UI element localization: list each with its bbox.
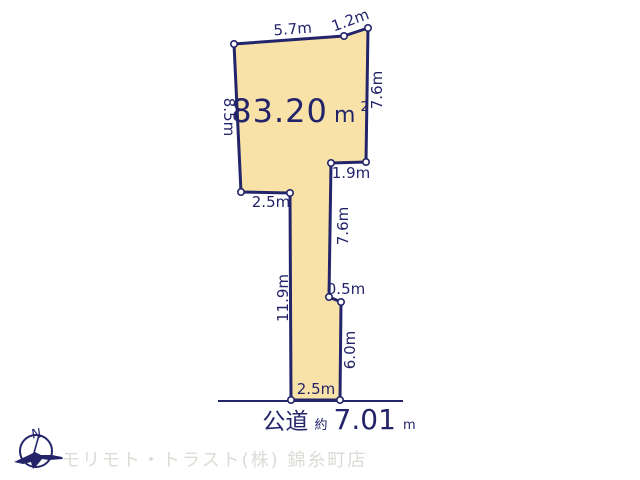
parcel-area-value: 83.20 xyxy=(231,92,328,130)
road-name: 公道 xyxy=(262,409,308,435)
road-width-unit: m xyxy=(403,418,416,433)
vertex-dot xyxy=(341,33,347,39)
vertex-dot xyxy=(288,397,294,403)
dim-right-middle: 7.6m xyxy=(334,207,352,245)
parcel-area-unit: m xyxy=(334,103,355,128)
dim-right-upper: 7.6m xyxy=(368,71,386,109)
dim-notch-right: 1.9m xyxy=(332,164,370,182)
dim-right-lower: 6.0m xyxy=(341,331,359,369)
road-approx-label: 約 xyxy=(314,418,327,433)
compass-north-label: N xyxy=(31,426,43,442)
vertex-dot xyxy=(231,41,237,47)
dim-step-right: 0.5m xyxy=(327,280,365,298)
dim-left-lower: 11.9m xyxy=(274,274,292,322)
vertex-dot xyxy=(338,299,344,305)
dim-bottom: 2.5m xyxy=(297,380,335,398)
site-plan-page: 5.7m 1.2m 7.6m 1.9m 7.6m 2.5m 8.5m 11.9m… xyxy=(0,0,640,480)
dim-notch-left: 2.5m xyxy=(252,193,290,211)
vertex-dot xyxy=(365,25,371,31)
road-width-value: 7.01 xyxy=(334,403,396,436)
site-plan-canvas: 5.7m 1.2m 7.6m 1.9m 7.6m 2.5m 8.5m 11.9m… xyxy=(0,0,640,480)
vertex-dot xyxy=(238,189,244,195)
parcel-area-unit-sup: 2 xyxy=(360,100,368,115)
footer-watermark: モリモト・トラスト(株) 錦糸町店 xyxy=(62,450,367,471)
dim-top: 5.7m xyxy=(273,19,313,40)
